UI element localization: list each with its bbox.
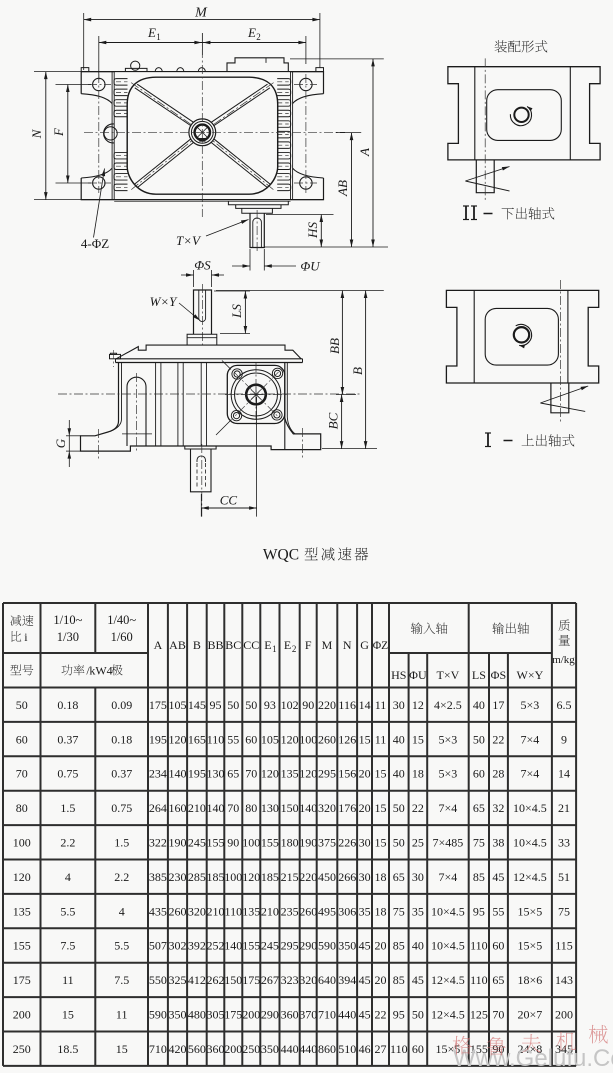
svg-text:30: 30 [359,870,371,884]
svg-text:450: 450 [318,870,336,884]
svg-text:60: 60 [473,767,485,781]
svg-text:B: B [350,367,365,375]
svg-text:2: 2 [256,32,261,42]
svg-text:185: 185 [207,870,225,884]
svg-text:E: E [247,25,256,40]
svg-text:150: 150 [281,801,299,815]
svg-text:45: 45 [412,973,424,987]
svg-text:200: 200 [224,1042,242,1056]
svg-text:LS: LS [472,668,486,682]
svg-text:15: 15 [375,767,387,781]
svg-text:28: 28 [492,767,504,781]
svg-text:195: 195 [149,732,167,746]
svg-text:110: 110 [225,904,243,918]
svg-text:70: 70 [227,801,239,815]
svg-text:CC: CC [243,638,259,652]
svg-text:135: 135 [242,904,260,918]
svg-text:30: 30 [412,870,424,884]
svg-text:156: 156 [338,767,356,781]
svg-text:A: A [357,148,372,157]
svg-text:245: 245 [261,939,279,953]
svg-text:234: 234 [149,767,167,781]
svg-text:7×4: 7×4 [439,801,458,815]
svg-text:75: 75 [558,904,570,918]
svg-text:260: 260 [299,904,317,918]
svg-text:15×5: 15×5 [518,904,543,918]
svg-text:2: 2 [292,644,297,654]
svg-text:590: 590 [318,939,336,953]
svg-text:46: 46 [359,1042,371,1056]
svg-text:200: 200 [242,1008,260,1022]
svg-text:33: 33 [558,836,570,850]
svg-text:7.5: 7.5 [60,939,75,953]
svg-text:480: 480 [188,1008,206,1022]
svg-text:12×4.5: 12×4.5 [431,1008,465,1022]
svg-text:360: 360 [207,1042,225,1056]
svg-text:75: 75 [473,836,485,850]
svg-text:11: 11 [116,1008,128,1022]
svg-text:14: 14 [558,767,570,781]
svg-text:0.37: 0.37 [57,732,78,746]
svg-text:75: 75 [393,904,405,918]
svg-text:110: 110 [390,1042,408,1056]
svg-text:1.5: 1.5 [60,801,75,815]
svg-text:30: 30 [359,836,371,850]
svg-text:60: 60 [245,732,257,746]
svg-text:392: 392 [188,939,206,953]
svg-text:260: 260 [169,904,187,918]
svg-text:350: 350 [261,1042,279,1056]
svg-text:HS: HS [391,668,406,682]
svg-text:120: 120 [169,732,187,746]
svg-text:420: 420 [169,1042,187,1056]
svg-text:125: 125 [470,1008,488,1022]
svg-text:12×4.5: 12×4.5 [431,973,465,987]
svg-text:50: 50 [412,1008,424,1022]
svg-text:25: 25 [412,836,424,850]
svg-text:45: 45 [359,939,371,953]
svg-text:65: 65 [393,870,405,884]
svg-text:2.2: 2.2 [114,870,129,884]
svg-text:7×4: 7×4 [439,870,458,884]
svg-text:1/10~: 1/10~ [53,613,82,627]
svg-text:BB: BB [207,638,223,652]
svg-text:1.5: 1.5 [114,836,129,850]
svg-text:560: 560 [188,1042,206,1056]
svg-text:2.2: 2.2 [60,836,75,850]
svg-text:15: 15 [375,836,387,850]
svg-text:325: 325 [169,973,187,987]
svg-text:385: 385 [149,870,167,884]
svg-text:135: 135 [281,767,299,781]
svg-text:M: M [194,6,208,21]
svg-text:70: 70 [16,767,28,781]
svg-text:50: 50 [393,801,405,815]
svg-text:155: 155 [207,836,225,850]
svg-text:85: 85 [473,870,485,884]
svg-text:120: 120 [13,870,31,884]
svg-text:252: 252 [207,939,225,953]
svg-text:10×4.5: 10×4.5 [513,836,547,850]
svg-text:50: 50 [227,698,239,712]
svg-text:5×3: 5×3 [439,767,458,781]
svg-text:1/40~: 1/40~ [107,613,136,627]
svg-text:590: 590 [149,1008,167,1022]
svg-text:55: 55 [492,904,504,918]
svg-text:10×4.5: 10×4.5 [431,904,465,918]
svg-text:kW4: kW4 [89,664,112,678]
svg-text:710: 710 [149,1042,167,1056]
svg-text:295: 295 [281,939,299,953]
svg-text:AB: AB [169,638,186,652]
svg-text:200: 200 [555,1008,573,1022]
svg-text:116: 116 [338,698,356,712]
svg-text:0.09: 0.09 [111,698,132,712]
svg-text:267: 267 [261,973,279,987]
svg-text:20: 20 [375,973,387,987]
svg-text:175: 175 [224,1008,242,1022]
svg-text:140: 140 [299,801,317,815]
svg-text:15: 15 [412,732,424,746]
svg-text:E: E [264,638,271,652]
svg-text:18: 18 [375,904,387,918]
svg-text:4: 4 [65,870,71,884]
svg-text:T×V: T×V [176,233,202,248]
svg-text:140: 140 [169,767,187,781]
svg-text:ΦU: ΦU [409,668,427,682]
svg-text:E: E [147,25,156,40]
svg-text:5×3: 5×3 [521,698,540,712]
svg-text:120: 120 [281,732,299,746]
svg-text:155: 155 [13,939,31,953]
svg-text:35: 35 [359,904,371,918]
svg-text:175: 175 [13,973,31,987]
svg-text:38: 38 [492,836,504,850]
svg-text:320: 320 [318,801,336,815]
svg-text:143: 143 [555,973,573,987]
svg-text:710: 710 [318,1008,336,1022]
svg-text:4×2.5: 4×2.5 [434,698,462,712]
svg-text:4: 4 [119,904,125,918]
svg-text:G: G [360,638,369,652]
svg-text:412: 412 [188,973,206,987]
svg-text:10×4.5: 10×4.5 [513,801,547,815]
svg-text:G: G [53,438,68,448]
svg-text:22: 22 [375,1008,387,1022]
svg-text:115: 115 [555,939,573,953]
svg-text:5×3: 5×3 [439,732,458,746]
svg-text:120: 120 [242,870,260,884]
svg-text:290: 290 [261,1008,279,1022]
svg-text:65: 65 [473,801,485,815]
svg-text:130: 130 [261,801,279,815]
svg-text:100: 100 [224,870,242,884]
svg-text:100: 100 [13,836,31,850]
svg-text:N: N [343,638,352,652]
svg-text:m/kg: m/kg [552,654,575,666]
svg-text:45: 45 [359,1008,371,1022]
svg-text:90: 90 [302,698,314,712]
svg-text:21: 21 [558,801,570,815]
svg-text:7×485: 7×485 [433,836,464,850]
svg-text:210: 210 [188,801,206,815]
svg-text:0.37: 0.37 [111,767,132,781]
svg-text:10×4.5: 10×4.5 [431,939,465,953]
svg-text:120: 120 [261,767,279,781]
svg-text:12×4.5: 12×4.5 [513,870,547,884]
svg-text:860: 860 [318,1042,336,1056]
svg-text:11: 11 [375,732,387,746]
svg-text:30: 30 [393,698,405,712]
svg-text:100: 100 [242,836,260,850]
svg-text:95: 95 [210,698,222,712]
svg-text:18×6: 18×6 [518,973,543,987]
svg-text:150: 150 [224,973,242,987]
svg-text:245: 245 [188,836,206,850]
svg-text:290: 290 [299,939,317,953]
svg-text:295: 295 [318,767,336,781]
svg-text:85: 85 [393,939,405,953]
svg-text:95: 95 [393,1008,405,1022]
svg-text:65: 65 [492,973,504,987]
svg-text:510: 510 [338,1042,356,1056]
svg-text:1/30: 1/30 [57,630,79,644]
svg-text:90: 90 [227,836,239,850]
svg-text:22: 22 [412,801,424,815]
svg-text:80: 80 [16,801,28,815]
svg-text:180: 180 [281,836,299,850]
svg-text:51: 51 [558,870,570,884]
svg-text:100: 100 [299,732,317,746]
svg-text:266: 266 [338,870,356,884]
svg-text:20: 20 [375,939,387,953]
svg-text:350: 350 [338,939,356,953]
svg-text:i: i [24,630,28,644]
svg-text:17: 17 [492,698,504,712]
svg-text:93: 93 [264,698,276,712]
svg-text:20: 20 [359,801,371,815]
svg-text:BC: BC [326,412,341,429]
svg-text:4-ΦZ: 4-ΦZ [81,236,109,251]
svg-text:285: 285 [188,870,206,884]
svg-text:BC: BC [225,638,241,652]
svg-text:262: 262 [207,973,225,987]
svg-text:190: 190 [169,836,187,850]
svg-text:440: 440 [338,1008,356,1022]
svg-text:60: 60 [492,939,504,953]
svg-text:15: 15 [359,732,371,746]
svg-text:145: 145 [188,698,206,712]
svg-text:18: 18 [375,870,387,884]
svg-text:210: 210 [207,904,225,918]
svg-text:40: 40 [393,732,405,746]
svg-text:260: 260 [318,732,336,746]
svg-text:320: 320 [188,904,206,918]
svg-text:322: 322 [149,836,167,850]
svg-text:7×4: 7×4 [521,732,540,746]
svg-text:11: 11 [62,973,74,987]
svg-text:20×7: 20×7 [518,1008,543,1022]
svg-text:7×4: 7×4 [521,767,540,781]
svg-text:HS: HS [305,222,320,239]
svg-text:155: 155 [242,939,260,953]
svg-text:40: 40 [393,767,405,781]
svg-text:WQC: WQC [263,547,299,564]
svg-text:ΦZ: ΦZ [373,640,388,652]
svg-text:215: 215 [281,870,299,884]
svg-text:85: 85 [393,973,405,987]
svg-text:105: 105 [169,698,187,712]
svg-text:50: 50 [16,698,28,712]
svg-text:6.5: 6.5 [557,698,572,712]
svg-text:165: 165 [188,732,206,746]
svg-text:250: 250 [13,1042,31,1056]
svg-text:0.18: 0.18 [57,698,78,712]
svg-text:70: 70 [245,767,257,781]
svg-text:Www.Gelufu.Com: Www.Gelufu.Com [453,1045,613,1068]
svg-text:350: 350 [169,1008,187,1022]
svg-text:M: M [322,638,333,652]
svg-text:305: 305 [207,1008,225,1022]
svg-text:120: 120 [299,767,317,781]
svg-text:ΦS: ΦS [491,668,506,682]
svg-text:220: 220 [318,698,336,712]
svg-text:140: 140 [224,939,242,953]
svg-text:ΦS: ΦS [194,258,211,273]
svg-text:110: 110 [207,732,225,746]
svg-text:440: 440 [299,1042,317,1056]
svg-text:550: 550 [149,973,167,987]
svg-text:320: 320 [299,973,317,987]
svg-text:195: 195 [188,767,206,781]
svg-text:190: 190 [299,836,317,850]
svg-text:F: F [305,638,312,652]
svg-text:55: 55 [227,732,239,746]
svg-text:18.5: 18.5 [57,1042,78,1056]
svg-text:440: 440 [281,1042,299,1056]
svg-text:95: 95 [473,904,485,918]
svg-text:40: 40 [412,939,424,953]
svg-text:65: 65 [227,767,239,781]
svg-text:N: N [29,128,44,139]
svg-text:0.75: 0.75 [111,801,132,815]
svg-text:495: 495 [318,904,336,918]
svg-text:375: 375 [318,836,336,850]
svg-text:B: B [193,638,201,652]
svg-text:27: 27 [375,1042,387,1056]
svg-text:640: 640 [318,973,336,987]
svg-text:E: E [284,638,291,652]
svg-text:12: 12 [412,698,424,712]
svg-text:9: 9 [561,732,567,746]
svg-text:7.5: 7.5 [114,973,129,987]
svg-text:80: 80 [245,801,257,815]
svg-text:AB: AB [335,180,350,197]
svg-text:302: 302 [169,939,187,953]
svg-text:135: 135 [13,904,31,918]
svg-text:435: 435 [149,904,167,918]
svg-text:W×Y: W×Y [150,294,179,309]
svg-text:60: 60 [16,732,28,746]
svg-text:130: 130 [207,767,225,781]
svg-text:45: 45 [359,973,371,987]
svg-text:1: 1 [156,32,161,42]
svg-text:15×5: 15×5 [518,939,543,953]
svg-text:126: 126 [338,732,356,746]
svg-text:140: 140 [207,801,225,815]
svg-text:323: 323 [281,973,299,987]
svg-text:32: 32 [492,801,504,815]
svg-text:220: 220 [299,870,317,884]
svg-text:60: 60 [412,1042,424,1056]
svg-text:50: 50 [393,836,405,850]
svg-text:0.75: 0.75 [57,767,78,781]
svg-text:14: 14 [359,698,371,712]
svg-text:1: 1 [272,644,277,654]
svg-text:264: 264 [149,801,167,815]
svg-text:250: 250 [242,1042,260,1056]
svg-text:40: 40 [473,698,485,712]
svg-text:T×V: T×V [437,668,460,682]
svg-text:1/60: 1/60 [111,630,133,644]
svg-text:185: 185 [261,870,279,884]
svg-text:200: 200 [13,1008,31,1022]
svg-text:160: 160 [169,801,187,815]
svg-text:15: 15 [375,801,387,815]
svg-text:ΦU: ΦU [300,259,321,274]
svg-text:CC: CC [220,493,238,508]
svg-text:F: F [51,127,66,137]
svg-text:W×Y: W×Y [517,668,544,682]
svg-text:70: 70 [492,1008,504,1022]
svg-text:102: 102 [281,698,299,712]
svg-text:50: 50 [245,698,257,712]
svg-text:110: 110 [470,939,488,953]
svg-text:0.18: 0.18 [111,732,132,746]
svg-text:A: A [154,638,163,652]
svg-text:175: 175 [149,698,167,712]
svg-text:11: 11 [375,698,387,712]
svg-text:BB: BB [327,338,342,354]
svg-text:360: 360 [281,1008,299,1022]
svg-text:45: 45 [492,870,504,884]
svg-text:22: 22 [492,732,504,746]
svg-text:155: 155 [261,836,279,850]
svg-text:394: 394 [338,973,356,987]
svg-text:15: 15 [62,1008,74,1022]
svg-text:18: 18 [412,767,424,781]
svg-text:226: 226 [338,836,356,850]
svg-text:50: 50 [473,732,485,746]
svg-text:175: 175 [242,973,260,987]
svg-text:230: 230 [169,870,187,884]
svg-text:5.5: 5.5 [60,904,75,918]
svg-text:LS: LS [229,304,244,319]
svg-text:507: 507 [149,939,167,953]
svg-text:35: 35 [412,904,424,918]
svg-text:15: 15 [116,1042,128,1056]
svg-text:105: 105 [261,732,279,746]
svg-text:110: 110 [470,973,488,987]
svg-text:176: 176 [338,801,356,815]
svg-text:235: 235 [281,904,299,918]
svg-text:20: 20 [359,767,371,781]
svg-text:306: 306 [338,904,356,918]
svg-text:5.5: 5.5 [114,939,129,953]
svg-text:370: 370 [299,1008,317,1022]
svg-text:210: 210 [261,904,279,918]
